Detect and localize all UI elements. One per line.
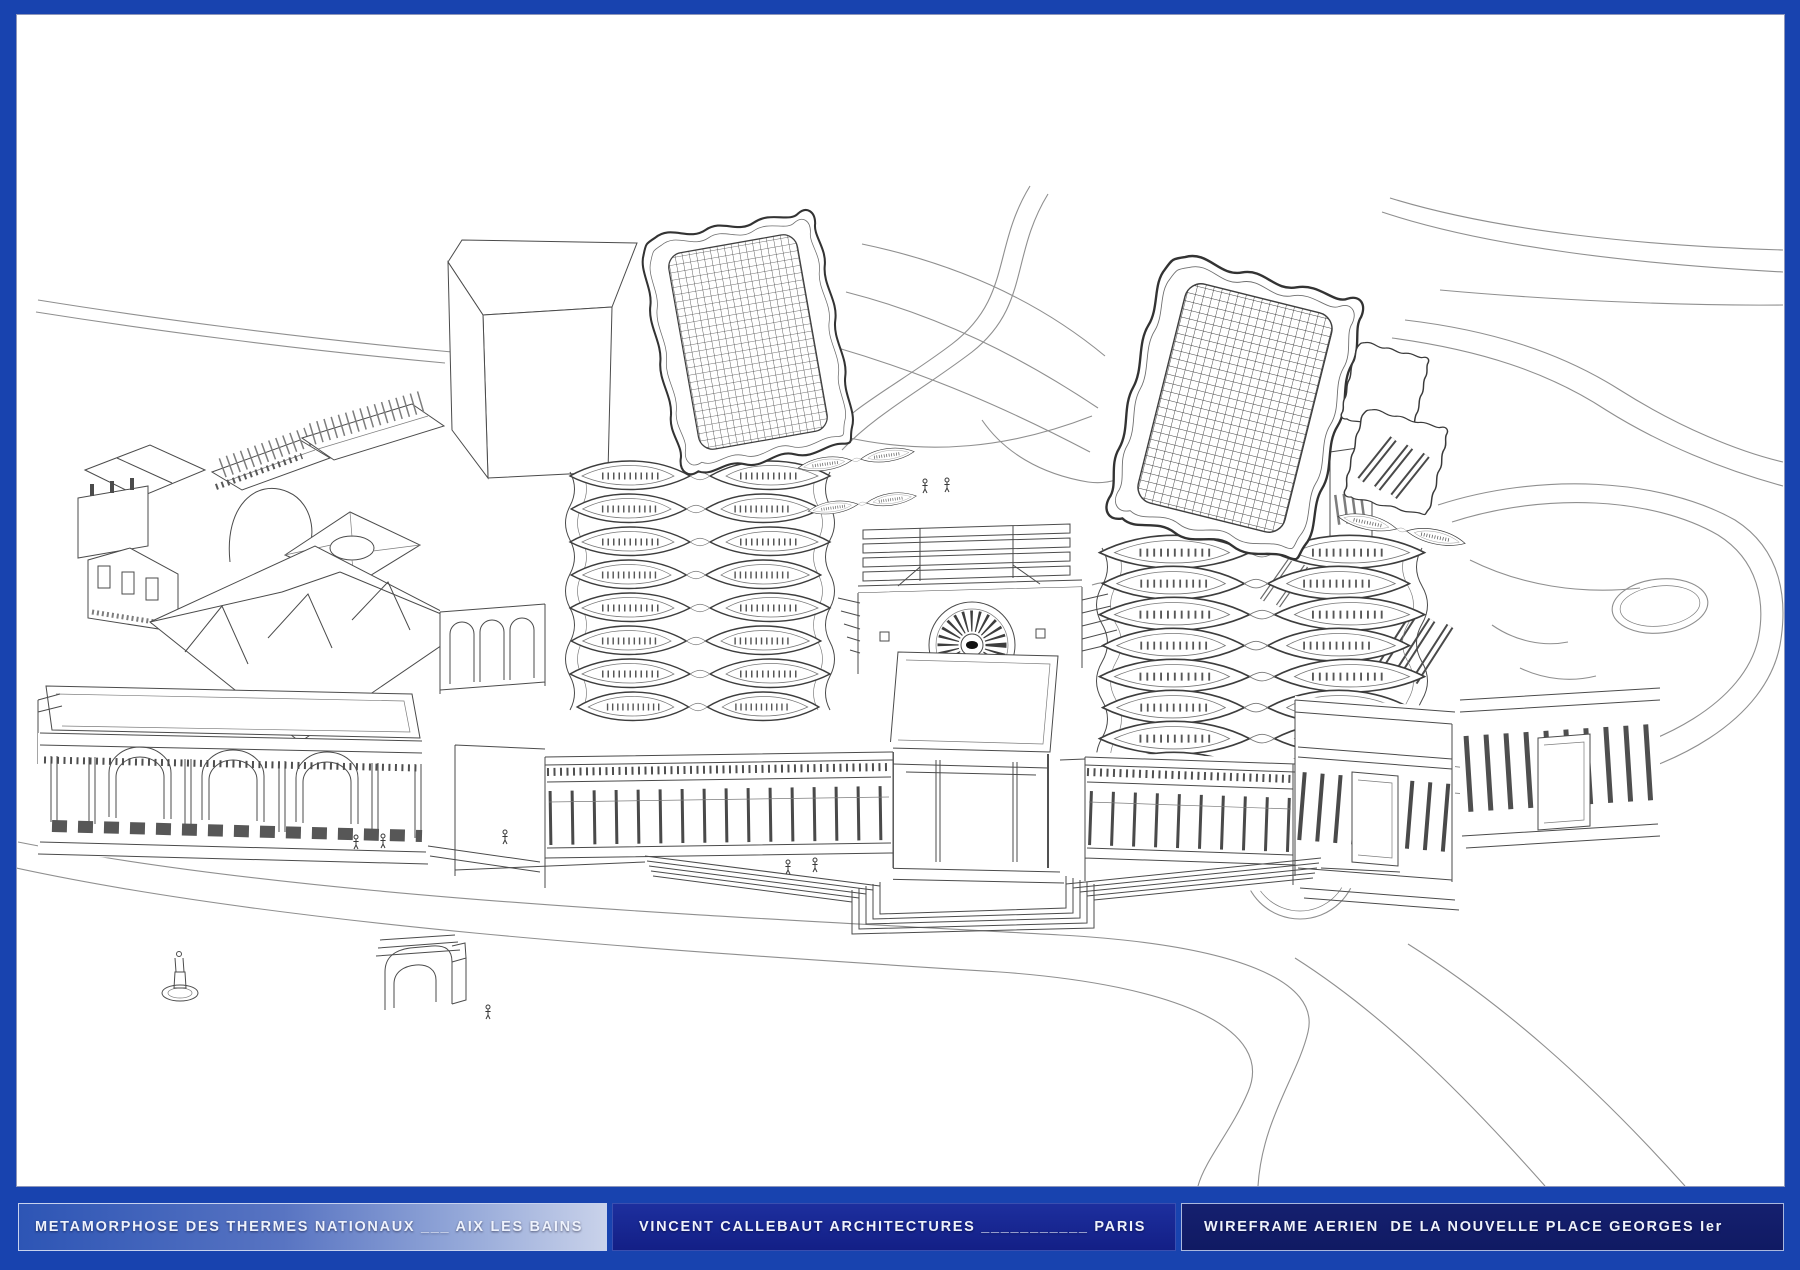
arch-monument: [376, 935, 466, 1010]
central-portico: [876, 652, 1064, 883]
statue-fountain: [162, 952, 198, 1002]
blueprint-board: METAMORPHOSE DES THERMES NATIONAUX ___ A…: [0, 0, 1800, 1270]
gateway-structure: [1460, 684, 1660, 854]
cascade-pads: [1337, 340, 1467, 550]
project-title: METAMORPHOSE DES THERMES NATIONAUX ___ A…: [35, 1219, 583, 1235]
end-pavilion: [1295, 696, 1459, 910]
wireframe-drawing: [17, 15, 1784, 1186]
architect-name: VINCENT CALLEBAUT ARCHITECTURES ________…: [639, 1219, 1146, 1235]
view-title: WIREFRAME AERIEN DE LA NOUVELLE PLACE GE…: [1204, 1219, 1723, 1235]
organic-tower-right: [1097, 248, 1467, 785]
drawing-canvas: [17, 15, 1784, 1186]
title-panel-view: WIREFRAME AERIEN DE LA NOUVELLE PLACE GE…: [1181, 1203, 1784, 1251]
title-panel-architect: VINCENT CALLEBAUT ARCHITECTURES ________…: [612, 1203, 1176, 1251]
title-panel-project: METAMORPHOSE DES THERMES NATIONAUX ___ A…: [18, 1203, 607, 1251]
